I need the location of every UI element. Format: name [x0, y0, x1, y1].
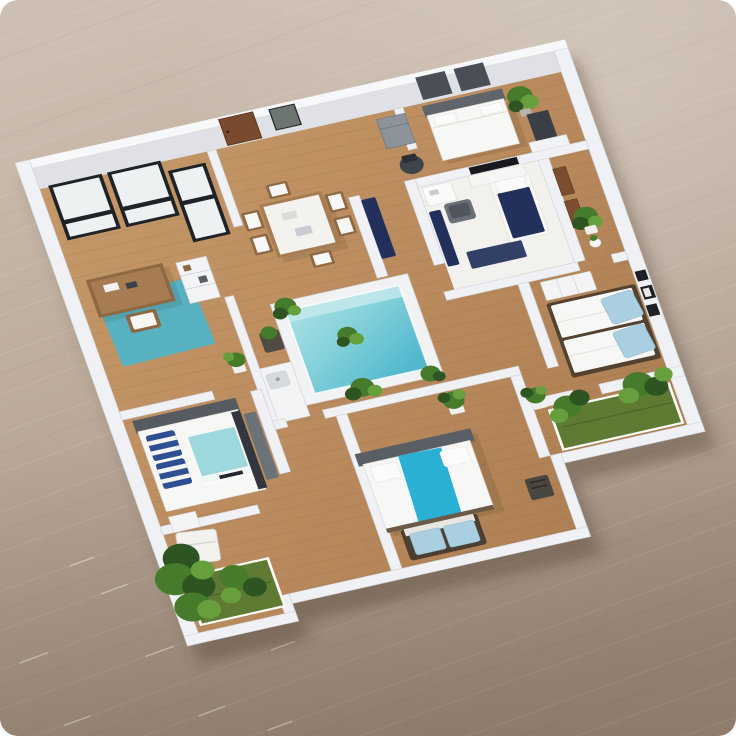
- rendered-image: [0, 0, 736, 736]
